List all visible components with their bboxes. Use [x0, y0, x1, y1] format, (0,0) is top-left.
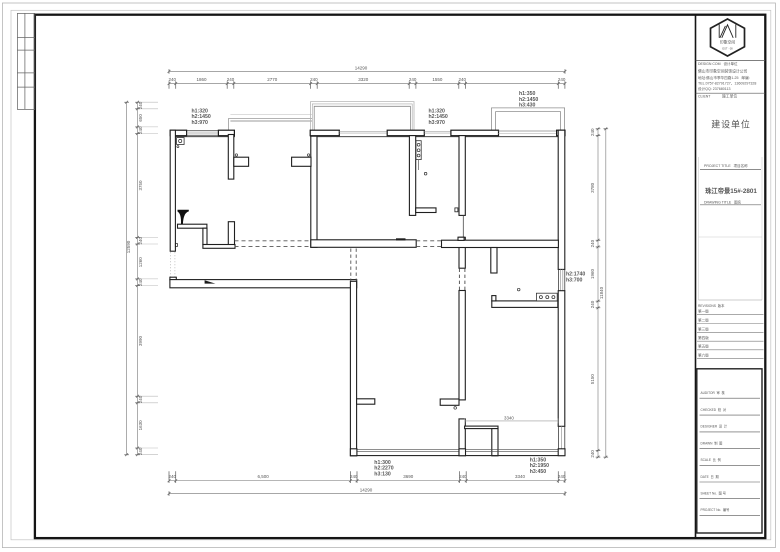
svg-text:240: 240	[558, 474, 566, 479]
svg-text:12590: 12590	[126, 240, 131, 253]
svg-text:3780: 3780	[590, 182, 595, 193]
svg-text:h3:970: h3:970	[192, 120, 209, 126]
svg-text:11840: 11840	[599, 286, 604, 299]
svg-text:240: 240	[138, 278, 143, 286]
svg-text:建设单位: 建设单位	[711, 118, 751, 129]
svg-text:h3:700: h3:700	[566, 277, 583, 283]
svg-text:SCALE 比 例: SCALE 比 例	[701, 457, 721, 462]
svg-text:240: 240	[227, 77, 235, 82]
svg-text:SHEET No. 图 号: SHEET No. 图 号	[701, 491, 726, 496]
svg-text:3750: 3750	[138, 180, 143, 191]
svg-text:第一版: 第一版	[698, 309, 709, 314]
svg-text:240: 240	[590, 300, 595, 308]
svg-text:240: 240	[590, 239, 595, 247]
svg-text:h3:430: h3:430	[519, 103, 536, 109]
svg-text:3990: 3990	[138, 335, 143, 346]
svg-text:h3:450: h3:450	[530, 469, 547, 475]
svg-text:h3:970: h3:970	[429, 120, 446, 126]
svg-text:设计QQ: 237680113: 设计QQ: 237680113	[698, 86, 731, 91]
svg-text:第四版: 第四版	[698, 335, 709, 340]
svg-text:1630: 1630	[138, 420, 143, 431]
svg-text:240: 240	[590, 450, 595, 458]
svg-text:2770: 2770	[267, 77, 278, 82]
svg-text:珠江帝景15#-2801: 珠江帝景15#-2801	[705, 186, 757, 195]
svg-text:240: 240	[138, 126, 143, 134]
svg-text:240: 240	[350, 474, 358, 479]
svg-text:第六版: 第六版	[698, 353, 709, 358]
svg-text:DATE 日 期: DATE 日 期	[701, 474, 719, 479]
svg-text:240: 240	[590, 128, 595, 136]
svg-text:3340: 3340	[515, 474, 526, 479]
svg-text:240: 240	[310, 77, 318, 82]
svg-text:CLIENT: CLIENT	[698, 94, 711, 98]
svg-text:佛山市印象空间装饰设计公司: 佛山市印象空间装饰设计公司	[698, 69, 748, 74]
svg-text:240: 240	[169, 77, 177, 82]
svg-text:第三版: 第三版	[698, 326, 709, 331]
svg-text:TEL:0757-82791727、13609297328: TEL:0757-82791727、13609297328	[698, 82, 756, 86]
svg-text:PROJECT No. 编号: PROJECT No. 编号	[701, 507, 730, 512]
svg-text:240: 240	[138, 395, 143, 403]
svg-text:DESIGN COM 设计单位: DESIGN COM 设计单位	[698, 61, 738, 66]
svg-text:240: 240	[458, 77, 466, 82]
svg-text:14290: 14290	[355, 65, 368, 70]
svg-text:3320: 3320	[358, 77, 369, 82]
svg-text:h3:130: h3:130	[374, 471, 391, 477]
svg-text:1960: 1960	[590, 268, 595, 279]
svg-text:1260: 1260	[138, 257, 143, 268]
svg-text:AUDITOR 审 核: AUDITOR 审 核	[701, 390, 726, 395]
svg-text:3340: 3340	[504, 416, 514, 421]
svg-text:14290: 14290	[360, 488, 373, 493]
svg-text:5150: 5150	[590, 374, 595, 385]
svg-text:240: 240	[409, 77, 417, 82]
svg-text:240: 240	[138, 236, 143, 244]
svg-text:240: 240	[558, 77, 566, 82]
svg-text:DESIGNER 设 计: DESIGNER 设 计	[701, 424, 728, 429]
svg-text:6,500: 6,500	[257, 474, 269, 479]
svg-text:REVISIONS 版本: REVISIONS 版本	[698, 303, 725, 308]
svg-text:第二版: 第二版	[698, 317, 709, 322]
svg-text:240: 240	[459, 474, 467, 479]
svg-text:第五版: 第五版	[698, 344, 709, 349]
svg-text:240: 240	[138, 447, 143, 455]
svg-text:施工单位: 施工单位	[722, 93, 737, 98]
svg-text:DRAWING TITLE 图名: DRAWING TITLE 图名	[704, 199, 741, 204]
svg-text:240: 240	[138, 101, 143, 109]
svg-text:3690: 3690	[403, 474, 414, 479]
svg-text:印象空间: 印象空间	[720, 40, 736, 45]
svg-text:地址:佛山市季华四路1-25 邮编:: 地址:佛山市季华四路1-25 邮编:	[698, 75, 750, 80]
svg-text:PROJECT TITLE 项目名称: PROJECT TITLE 项目名称	[704, 163, 748, 168]
svg-text:EST · 08: EST · 08	[722, 46, 733, 50]
svg-text:240: 240	[169, 474, 177, 479]
svg-text:1550: 1550	[432, 77, 443, 82]
svg-text:1860: 1860	[196, 77, 207, 82]
svg-text:DRAWN 制 图: DRAWN 制 图	[701, 440, 723, 445]
svg-text:650: 650	[138, 114, 143, 122]
svg-text:CHECKED 校 对: CHECKED 校 对	[701, 407, 727, 412]
